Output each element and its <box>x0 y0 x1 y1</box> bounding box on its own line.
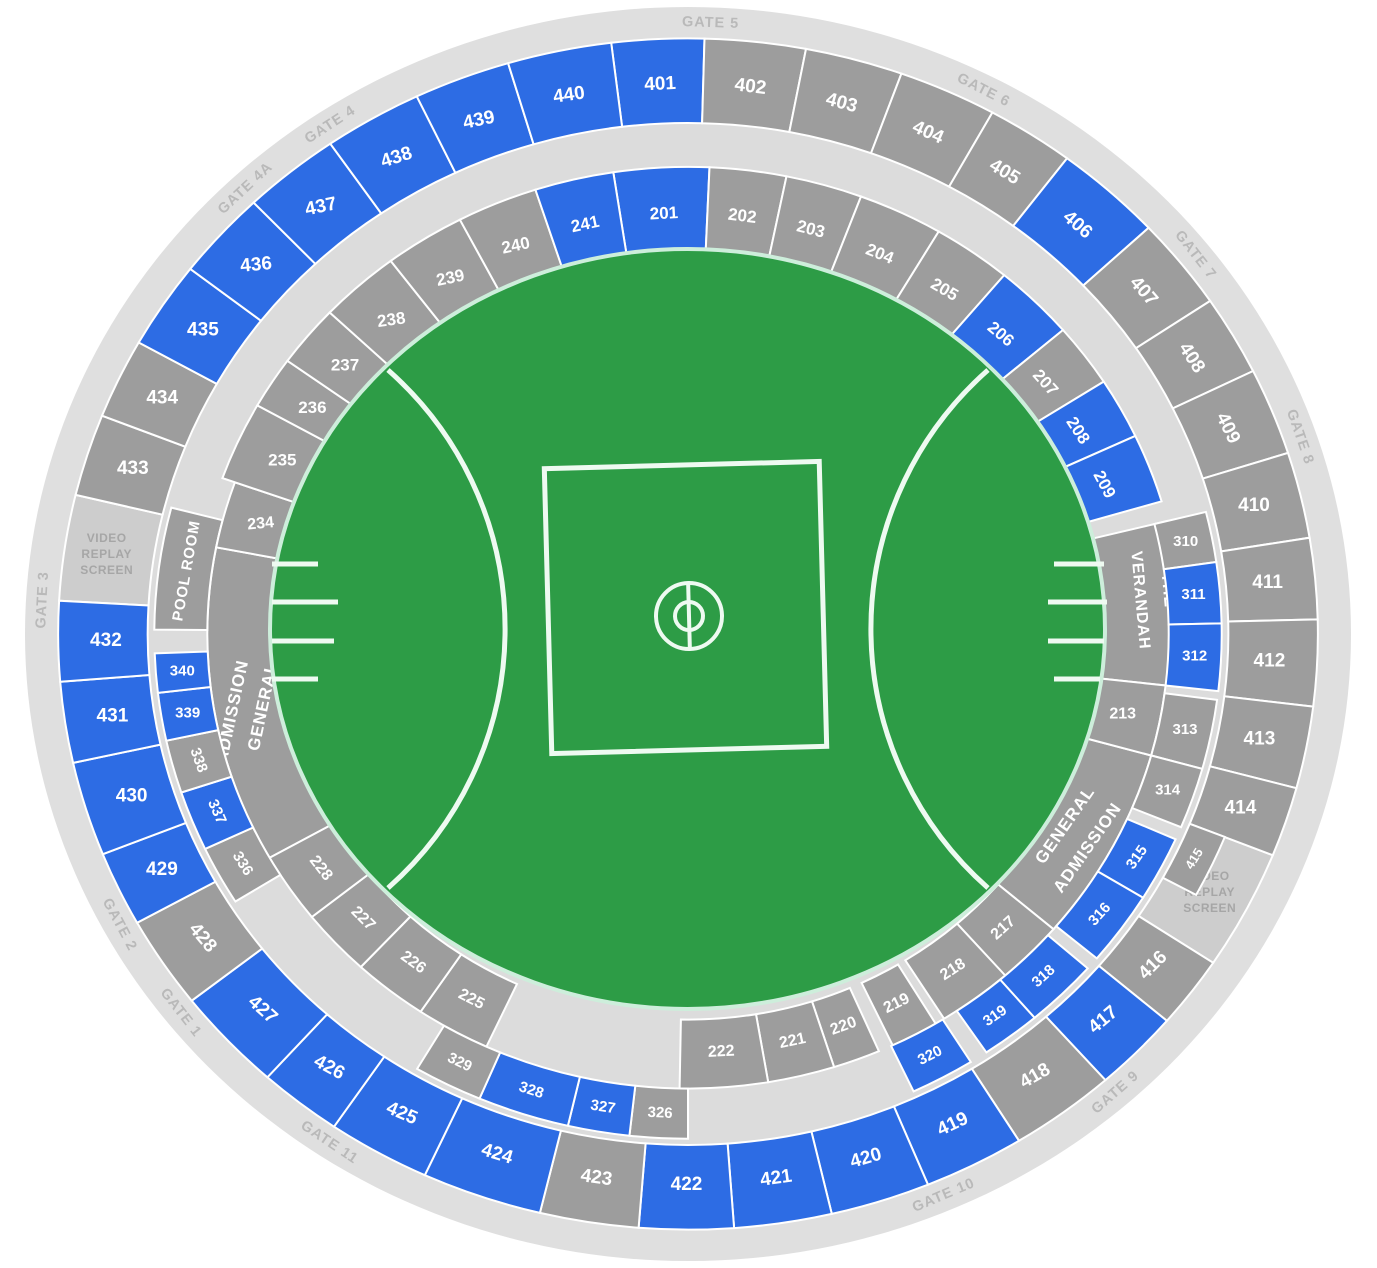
section-421-label: 421 <box>759 1166 794 1191</box>
section-436-label: 436 <box>239 253 272 277</box>
section-311-label: 311 <box>1181 586 1205 603</box>
section-432-label: 432 <box>90 630 122 651</box>
section-434-label: 434 <box>146 387 178 408</box>
stadium-seat-map-page: GENERALADMISSIONPOOL ROOMTHEVERANDAHGENE… <box>0 0 1377 1268</box>
section-412-label: 412 <box>1254 650 1286 671</box>
section-429-label: 429 <box>146 859 178 880</box>
section-431-label: 431 <box>97 705 129 726</box>
gate-label-gate-5: GATE 5 <box>682 14 740 32</box>
video-replay-screen-left-label: SCREEN <box>80 563 133 577</box>
section-234-label: 234 <box>247 514 275 533</box>
section-237-label: 237 <box>331 356 359 375</box>
section-435-label: 435 <box>187 319 219 340</box>
section-313-label: 313 <box>1172 721 1197 738</box>
section-414-label: 414 <box>1225 797 1257 818</box>
section-326-label: 326 <box>647 1104 673 1122</box>
section-410-label: 410 <box>1238 495 1270 516</box>
section-202-label: 202 <box>727 205 757 227</box>
section-201-label: 201 <box>649 203 678 223</box>
section-238-label: 238 <box>376 308 407 331</box>
section-423-label: 423 <box>579 1165 613 1190</box>
video-replay-screen-right-label: SCREEN <box>1183 901 1236 915</box>
section-235-label: 235 <box>268 450 296 469</box>
section-236-label: 236 <box>298 398 326 417</box>
section-402-label: 402 <box>733 74 767 99</box>
section-213-label: 213 <box>1109 705 1136 722</box>
section-314-label: 314 <box>1155 782 1181 799</box>
section-339-label: 339 <box>175 704 200 721</box>
video-replay-screen-left-label: REPLAY <box>81 547 132 561</box>
section-440-label: 440 <box>552 82 586 107</box>
video-replay-screen-left-label: VIDEO <box>87 531 127 545</box>
section-340-label: 340 <box>170 663 195 680</box>
section-413-label: 413 <box>1244 729 1276 750</box>
section-411-label: 411 <box>1252 572 1283 593</box>
section-312-label: 312 <box>1182 648 1207 665</box>
section-430-label: 430 <box>116 785 148 806</box>
section-310-label: 310 <box>1173 533 1198 550</box>
section-422-label: 422 <box>671 1174 703 1195</box>
section-401-label: 401 <box>644 73 677 96</box>
gate-label-gate-3: GATE 3 <box>33 571 52 629</box>
section-433-label: 433 <box>117 458 149 479</box>
section-222-label: 222 <box>707 1043 735 1061</box>
stadium-map: GENERALADMISSIONPOOL ROOMTHEVERANDAHGENE… <box>0 0 1377 1268</box>
